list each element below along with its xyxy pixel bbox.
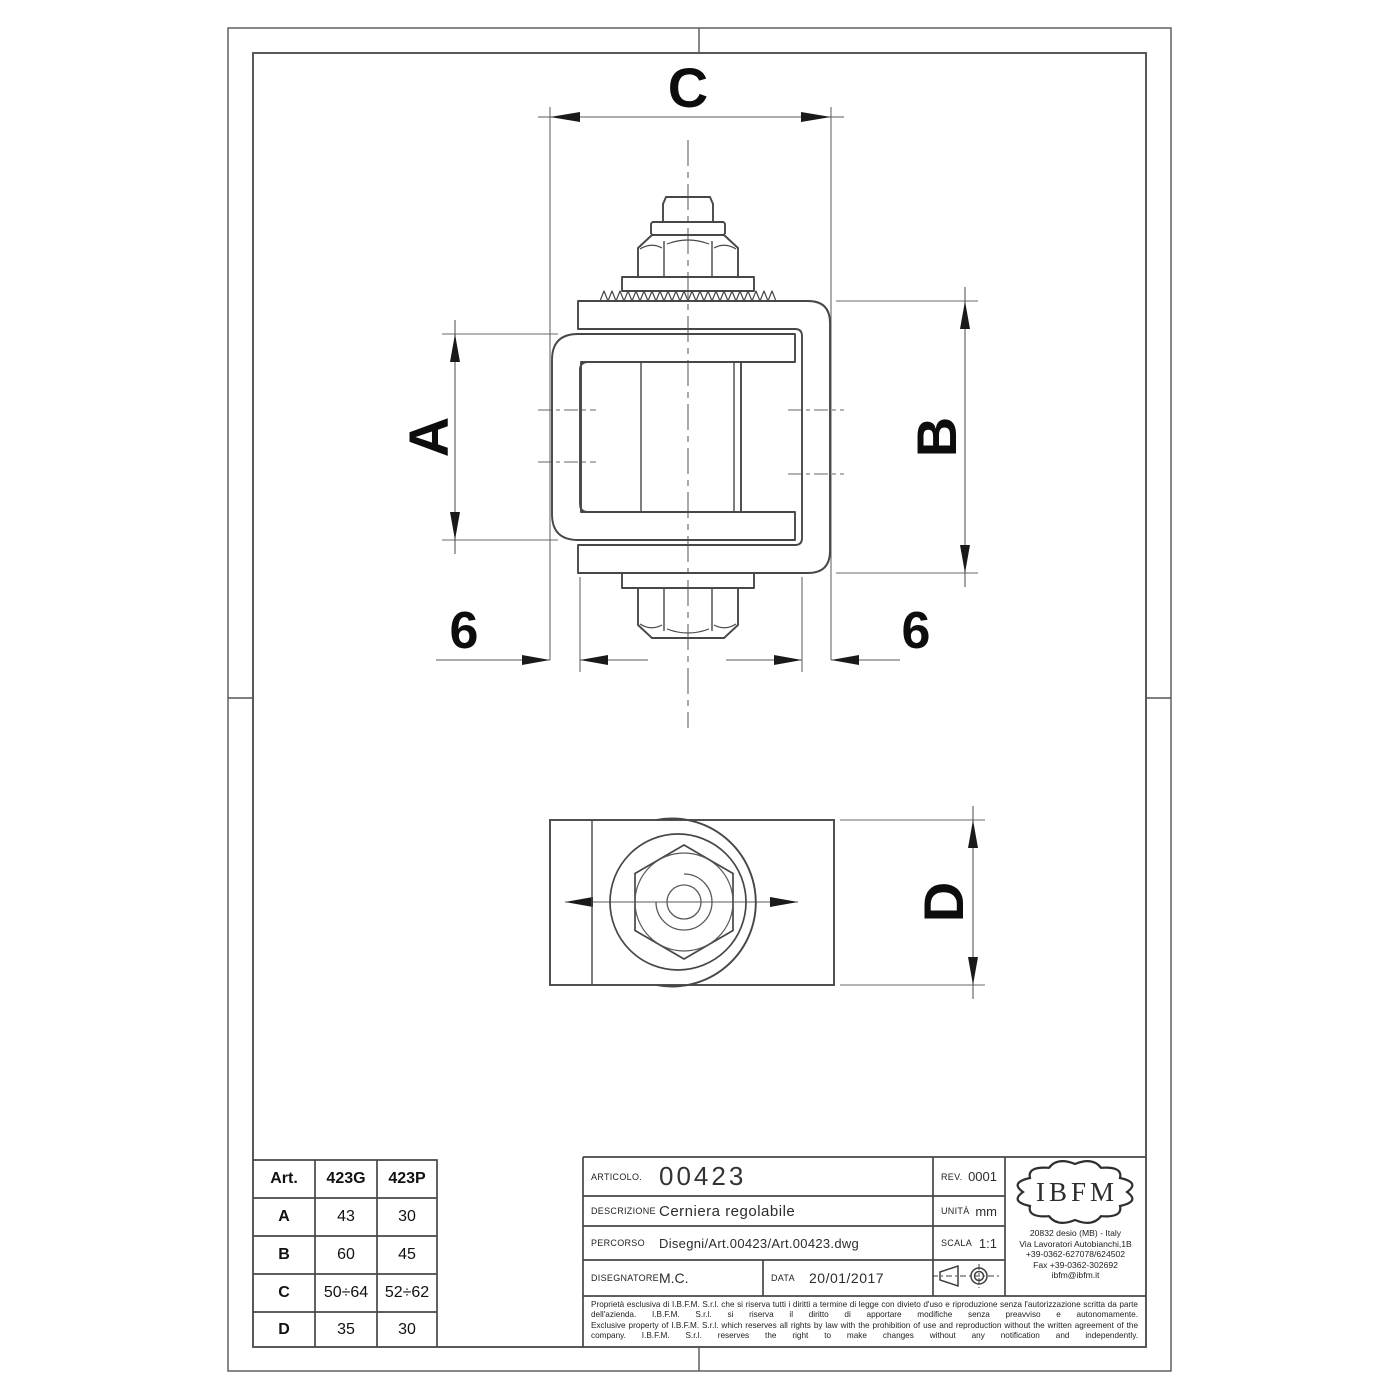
spec-header-423p: 423P (377, 1160, 437, 1198)
unita-cell: UNITÀ mm (933, 1196, 1005, 1226)
disegnatore-value: M.C. (659, 1270, 689, 1286)
inner-bracket (552, 334, 795, 540)
descrizione-label: DESCRIZIONE (583, 1206, 659, 1216)
spec-row-label: D (253, 1312, 315, 1347)
dim-label-a: A (397, 417, 460, 457)
ibfm-logo-emblem: IBFM (1018, 1161, 1133, 1223)
articolo-label: ARTICOLO. (583, 1172, 659, 1182)
scala-value: 1:1 (979, 1236, 997, 1251)
rev-value: 0001 (968, 1169, 997, 1184)
spec-value: 30 (377, 1312, 437, 1347)
spec-value: 52÷62 (377, 1274, 437, 1312)
data-cell: DATA 20/01/2017 (763, 1260, 933, 1296)
spec-value: 45 (377, 1236, 437, 1274)
dimension-lines (436, 117, 973, 999)
legal-notice: Proprietà esclusiva di I.B.F.M. S.r.l. c… (591, 1300, 1138, 1344)
hole-axis-lines (538, 410, 844, 474)
percorso-value: Disegni/Art.00423/Art.00423.dwg (659, 1236, 859, 1251)
data-value: 20/01/2017 (809, 1270, 884, 1286)
legal-notice-it: Proprietà esclusiva di I.B.F.M. S.r.l. c… (591, 1300, 1138, 1321)
percorso-cell: PERCORSO Disegni/Art.00423/Art.00423.dwg (583, 1226, 933, 1260)
drawing-sheet: C A B 6 6 D IBFM Art. 423G 423P A 43 30 … (0, 0, 1400, 1400)
spec-header-art: Art. (253, 1160, 315, 1198)
hinge-front-view (552, 197, 830, 638)
rev-label: REV. (941, 1172, 962, 1182)
address-line: Via Lavoratori Autobianchi,1B (1005, 1239, 1146, 1250)
spec-header-423g: 423G (315, 1160, 377, 1198)
ibfm-logo-text: IBFM (1036, 1177, 1118, 1207)
pivot-block (581, 362, 741, 512)
rev-cell: REV. 0001 (933, 1157, 1005, 1196)
dim-label-6-right: 6 (902, 602, 931, 660)
spec-row-label: C (253, 1274, 315, 1312)
unita-label: UNITÀ (941, 1206, 970, 1216)
dim-label-d: D (912, 882, 975, 922)
dim-label-b: B (905, 417, 968, 457)
disegnatore-label: DISEGNATORE (583, 1273, 659, 1283)
spec-row-label: B (253, 1236, 315, 1274)
address-line: ibfm@ibfm.it (1005, 1270, 1146, 1281)
articolo-value: 00423 (659, 1161, 746, 1192)
descrizione-cell: DESCRIZIONE Cerniera regolabile (583, 1196, 933, 1226)
address-line: +39-0362-627078/624502 (1005, 1249, 1146, 1260)
dim-label-6-left: 6 (450, 602, 479, 660)
spec-value: 35 (315, 1312, 377, 1347)
spec-value: 60 (315, 1236, 377, 1274)
address-line: 20832 desio (MB) - Italy (1005, 1228, 1146, 1239)
spec-row-label: A (253, 1198, 315, 1236)
disegnatore-cell: DISEGNATORE M.C. (583, 1260, 763, 1296)
spec-value: 30 (377, 1198, 437, 1236)
scala-cell: SCALA 1:1 (933, 1226, 1005, 1260)
address-line: Fax +39-0362-302692 (1005, 1260, 1146, 1271)
percorso-label: PERCORSO (583, 1238, 659, 1248)
articolo-cell: ARTICOLO. 00423 (583, 1157, 933, 1196)
extension-lines (442, 107, 985, 985)
outer-bracket (578, 301, 830, 573)
dim-label-c: C (668, 56, 708, 119)
data-label: DATA (763, 1273, 809, 1283)
scala-label: SCALA (941, 1238, 972, 1248)
unita-value: mm (975, 1204, 997, 1219)
ibfm-address-block: 20832 desio (MB) - Italy Via Lavoratori … (1005, 1228, 1146, 1281)
legal-notice-en: Exclusive property of I.B.F.M. S.r.l. wh… (591, 1321, 1138, 1342)
projection-symbol-icon (932, 1264, 1000, 1288)
spec-value: 50÷64 (315, 1274, 377, 1312)
descrizione-value: Cerniera regolabile (659, 1203, 795, 1220)
dimension-arrowheads (450, 112, 978, 985)
spec-value: 43 (315, 1198, 377, 1236)
